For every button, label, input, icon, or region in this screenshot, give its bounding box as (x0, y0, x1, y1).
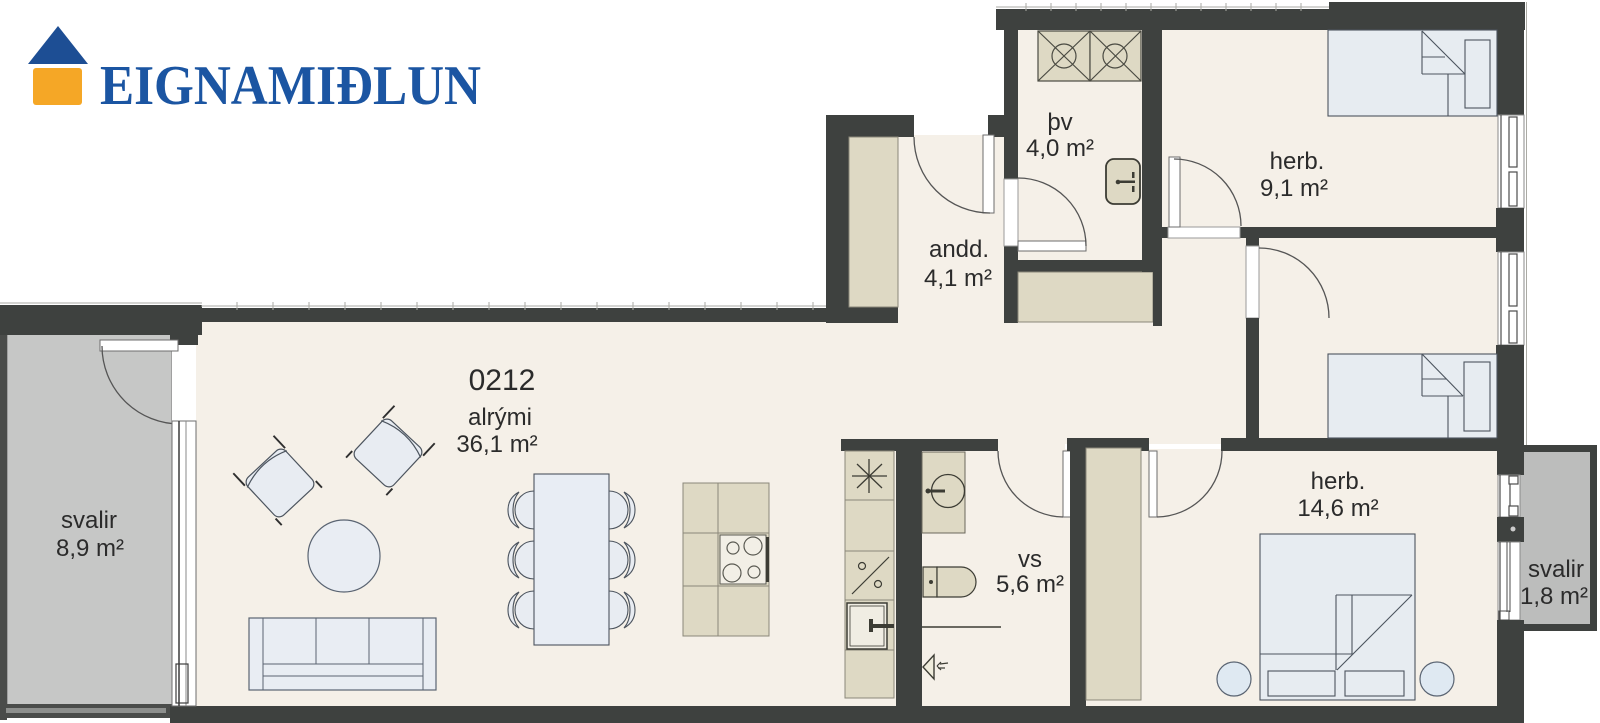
svg-text:8,9 m²: 8,9 m² (56, 535, 124, 562)
svg-text:þv: þv (1047, 109, 1072, 136)
svg-text:4,0 m²: 4,0 m² (1026, 135, 1094, 162)
svg-text:14,6 m²: 14,6 m² (1297, 495, 1378, 522)
svg-text:4,1 m²: 4,1 m² (924, 265, 992, 292)
svg-text:herb.: herb. (1270, 148, 1325, 175)
svg-text:andd.: andd. (929, 236, 989, 263)
svg-text:vs: vs (1018, 546, 1042, 573)
svg-text:EIGNAMIÐLUN: EIGNAMIÐLUN (100, 55, 481, 117)
svg-text:svalir: svalir (1528, 556, 1584, 583)
svg-text:alrými: alrými (468, 404, 532, 431)
svg-text:1,8 m²: 1,8 m² (1520, 583, 1588, 610)
svg-text:9,1 m²: 9,1 m² (1260, 175, 1328, 202)
svg-text:herb.: herb. (1311, 468, 1366, 495)
svg-text:5,6 m²: 5,6 m² (996, 571, 1064, 598)
svg-text:svalir: svalir (61, 507, 117, 534)
svg-text:0212: 0212 (469, 364, 536, 397)
svg-text:36,1 m²: 36,1 m² (456, 431, 537, 458)
